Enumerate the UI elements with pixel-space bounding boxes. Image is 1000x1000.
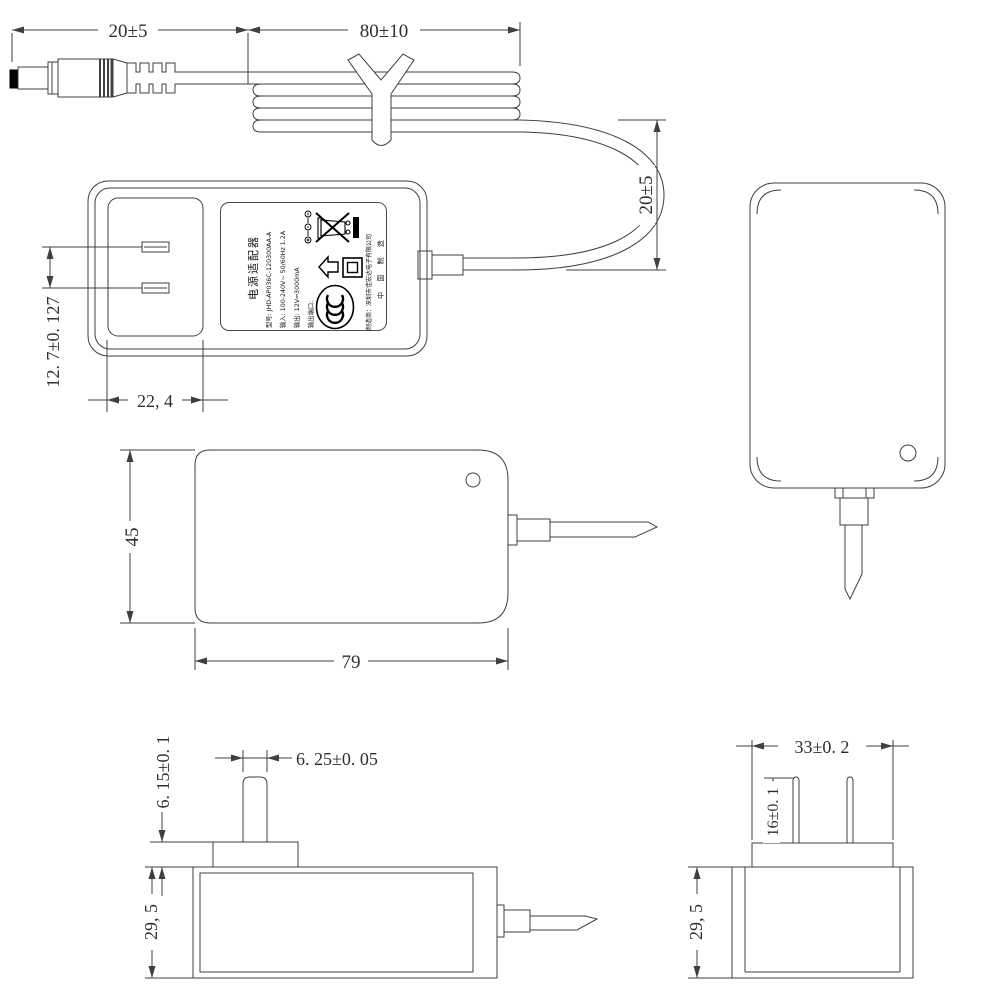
dimension-top: 20±5 80±10 — [12, 20, 520, 84]
plug-prong — [793, 777, 799, 843]
side-view — [195, 450, 657, 623]
ccc-mark-icon — [315, 284, 355, 330]
dim-pedestal-width: 33±0. 2 — [795, 737, 850, 757]
end-view — [732, 777, 913, 978]
prong-slot-bottom — [142, 283, 169, 293]
dimension-body-width: 79 — [195, 628, 508, 673]
strain-relief-back — [835, 488, 874, 599]
dimension-prong-pitch: 12. 7±0. 127 — [42, 247, 142, 387]
prong-slot-top — [142, 242, 169, 252]
dim-pedestal-height: 6. 15±0. 1 — [153, 736, 173, 809]
plug-prong — [243, 777, 267, 842]
label-title: 电源适配器 — [245, 203, 261, 332]
dim-cable-loop-height: 20±5 — [636, 176, 657, 215]
dimension-prong-width: 6. 25±0. 05 — [215, 749, 378, 772]
dimension-thickness-right: 29, 5 — [685, 867, 732, 978]
dim-prong-length: 16±0. 1 — [765, 788, 782, 837]
cable-exit-connector — [418, 251, 463, 279]
strain-relief-side — [508, 515, 657, 545]
technical-drawing-page: 20±5 80±10 — [0, 0, 1000, 1000]
bottom-view — [193, 777, 597, 978]
dimension-cable-loop: 20±5 — [566, 120, 666, 270]
cable-loop — [463, 120, 664, 270]
dim-cable-connector-length: 20±5 — [109, 21, 148, 42]
rating-label-content: 电源适配器 型号: JHD-AP036C-120300AA-A 输入: 100-… — [221, 203, 388, 332]
label-made-in: 中 国 制 造 — [376, 203, 386, 332]
label-output-rating: 输出: 12V⎓3000mA — [292, 267, 302, 328]
label-output-port: 输出端口: — [306, 301, 315, 328]
dim-prong-pitch: 12. 7±0. 127 — [43, 297, 63, 388]
dimension-prong-length: 16±0. 1 — [763, 778, 793, 843]
plug-prong — [847, 777, 853, 843]
strain-relief-bottom — [497, 905, 597, 937]
weee-bar-icon — [353, 217, 359, 238]
adapter-drawing-svg: 20±5 80±10 — [0, 0, 1000, 1000]
label-model: 型号: JHD-AP036C-120300AA-A — [264, 232, 273, 328]
polarity-icon — [303, 210, 313, 244]
dim-thickness-left: 29, 5 — [141, 904, 161, 940]
class-ii-icon — [342, 257, 363, 278]
dimension-pedestal-width: 33±0. 2 — [736, 736, 909, 840]
screw-hole — [466, 473, 480, 487]
dimension-pedestal-height: 6. 15±0. 1 — [145, 736, 213, 896]
dim-prong-width: 6. 25±0. 05 — [296, 749, 378, 769]
dimension-thickness-left: 29, 5 — [140, 867, 193, 978]
dim-thickness-right: 29, 5 — [686, 904, 706, 940]
label-manufacturer: 制造商：深圳市佳宏达电子有限公司 — [364, 234, 373, 330]
dim-cable-coil-length: 80±10 — [360, 21, 408, 42]
indoor-use-icon — [316, 254, 339, 280]
back-view — [750, 183, 945, 599]
dim-recess-width: 22, 4 — [137, 391, 173, 411]
dc-plug — [10, 59, 256, 97]
screw-hole — [900, 445, 916, 461]
dim-body-height: 45 — [122, 528, 143, 547]
dim-body-width: 79 — [342, 652, 361, 673]
rating-label: 电源适配器 型号: JHD-AP036C-120300AA-A 输入: 100-… — [220, 202, 387, 331]
dimension-recess-width: 22, 4 — [88, 340, 228, 412]
label-input-rating: 输入: 100-240V~ 50/60Hz 1.2A — [278, 231, 287, 328]
weee-bin-icon — [314, 211, 361, 244]
dimension-body-height: 45 — [120, 450, 195, 623]
